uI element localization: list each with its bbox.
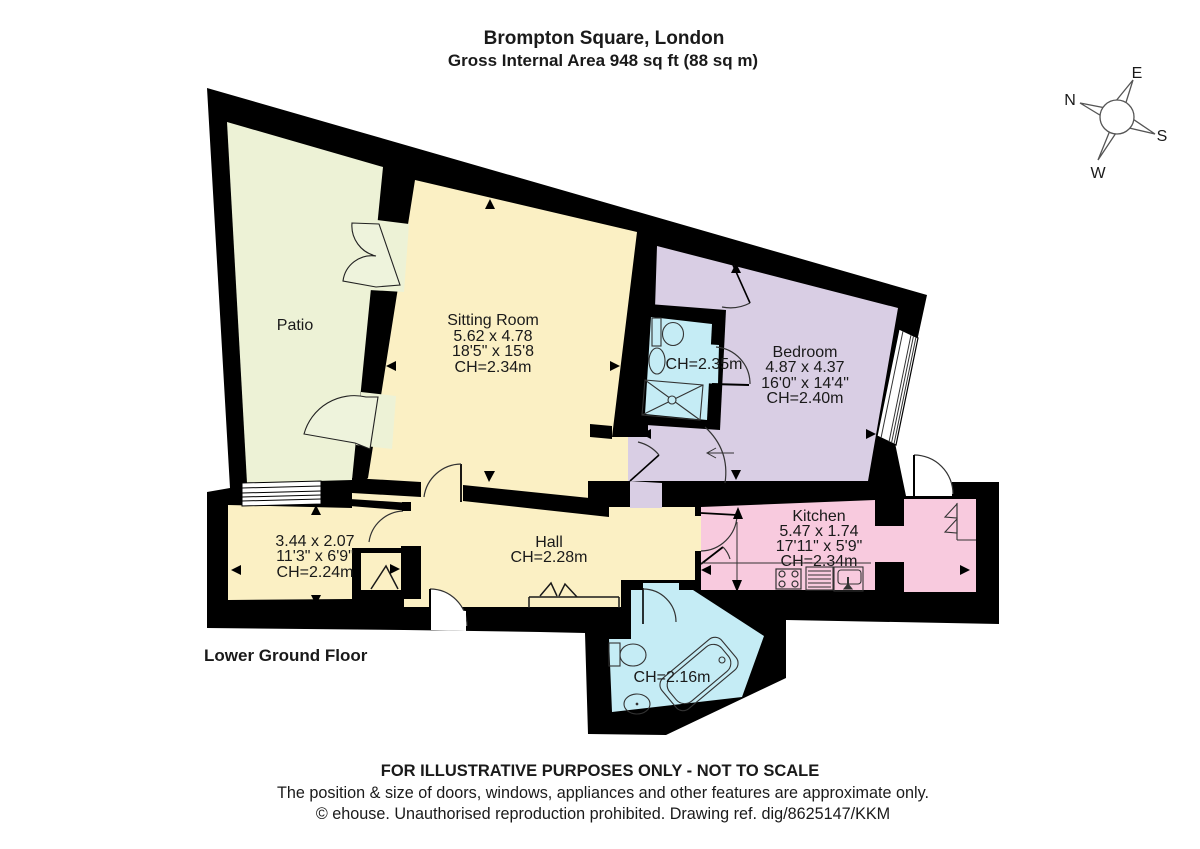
svg-text:CH=2.34m: CH=2.34m xyxy=(781,553,858,570)
svg-text:S: S xyxy=(1157,128,1168,145)
svg-text:Patio: Patio xyxy=(277,317,314,334)
svg-text:18'5" x 15'8: 18'5" x 15'8 xyxy=(452,343,534,360)
svg-text:CH=2.35m: CH=2.35m xyxy=(666,356,743,373)
svg-text:4.87 x 4.37: 4.87 x 4.37 xyxy=(765,359,844,376)
svg-text:CH=2.40m: CH=2.40m xyxy=(767,390,844,407)
svg-text:CH=2.24m: CH=2.24m xyxy=(277,564,354,581)
svg-text:Sitting Room: Sitting Room xyxy=(447,312,539,329)
svg-text:W: W xyxy=(1090,165,1106,182)
svg-text:11'3" x 6'9": 11'3" x 6'9" xyxy=(276,548,354,565)
svg-text:Gross Internal Area 948 sq ft: Gross Internal Area 948 sq ft (88 sq m) xyxy=(448,51,758,70)
svg-text:N: N xyxy=(1064,92,1076,109)
svg-text:Lower Ground Floor: Lower Ground Floor xyxy=(204,646,368,665)
svg-text:CH=2.16m: CH=2.16m xyxy=(634,669,711,686)
svg-text:CH=2.28m: CH=2.28m xyxy=(511,549,588,566)
svg-text:© ehouse. Unauthorised reprodu: © ehouse. Unauthorised reproduction proh… xyxy=(316,805,890,823)
svg-text:E: E xyxy=(1132,65,1143,82)
svg-text:CH=2.34m: CH=2.34m xyxy=(455,359,532,376)
svg-text:FOR ILLUSTRATIVE PURPOSES ONLY: FOR ILLUSTRATIVE PURPOSES ONLY - NOT TO … xyxy=(381,762,820,780)
svg-text:Brompton Square, London: Brompton Square, London xyxy=(484,28,725,49)
svg-text:The position & size of doors,: The position & size of doors, windows, a… xyxy=(277,784,929,802)
